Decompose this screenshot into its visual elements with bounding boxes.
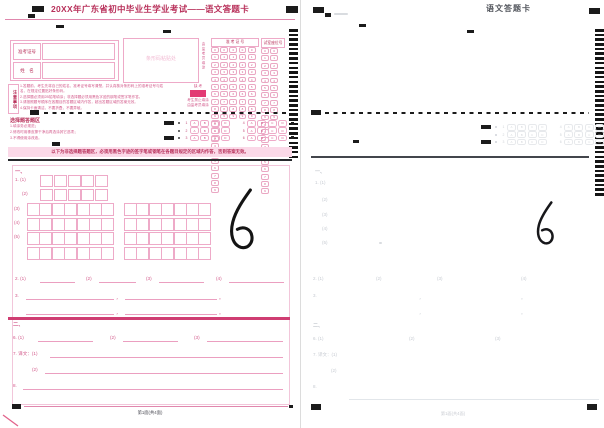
timing-mark <box>595 179 604 182</box>
timing-mark <box>289 62 298 65</box>
mc-row: 3ABCD6ABCD <box>481 139 604 146</box>
handwritten-six <box>224 188 256 255</box>
timing-mark <box>595 34 604 37</box>
option-bubble-C: C <box>585 124 594 131</box>
option-bubble-B: B <box>257 135 266 142</box>
timing-mark <box>595 38 604 41</box>
answer-box <box>136 203 149 216</box>
answer-box <box>39 247 52 260</box>
section-one-label: 一、 <box>315 168 325 175</box>
answer-box <box>77 203 90 216</box>
timing-mark <box>595 174 604 177</box>
option-bubble-D: D <box>538 131 547 138</box>
digit-bubble-4: 4 <box>248 77 256 83</box>
answer-box <box>149 203 162 216</box>
barcode-area: 条形码粘贴处 <box>123 38 199 83</box>
footer-rule <box>349 399 599 400</box>
answer-box <box>101 247 114 260</box>
candidate-info-form: 准考证号 姓 名 <box>10 40 119 81</box>
dot-mark <box>495 141 497 143</box>
name-field <box>42 62 115 79</box>
digit-bubble-4: 4 <box>270 78 278 84</box>
answer-box <box>39 232 52 245</box>
answer-blank <box>159 282 204 283</box>
answer-box <box>64 218 77 231</box>
q2-sub2-label: (2) <box>376 276 382 281</box>
digit-bubble-2: 2 <box>270 63 278 69</box>
option-bubble-B: B <box>200 127 209 134</box>
digit-bubble-7: 7 <box>261 100 269 106</box>
question-number: 1 <box>500 125 507 129</box>
option-bubble-A: A <box>564 124 573 131</box>
sync-mark <box>30 110 39 115</box>
digit-bubble-3: 3 <box>239 69 247 75</box>
answer-box <box>186 247 199 260</box>
sync-mark <box>289 405 293 408</box>
timing-mark <box>595 165 604 168</box>
option-bubble-A: A <box>190 135 199 142</box>
q7-sub1-label: 7. 译文：(1) <box>13 351 38 357</box>
question-number: 4 <box>557 125 564 129</box>
period-mark: 。 <box>219 310 224 316</box>
timing-mark <box>289 90 298 93</box>
option-bubble-D: D <box>278 120 287 127</box>
timing-mark <box>595 184 604 187</box>
q3-label: 3. <box>15 293 19 298</box>
sync-mark <box>481 140 491 144</box>
q2-sub4-label: (4) <box>216 276 222 281</box>
timing-mark <box>595 193 604 196</box>
digit-bubble-6: 6 <box>211 91 219 97</box>
q1-sub1-label: 1. (1) <box>315 180 326 185</box>
q3-label: 3. <box>313 293 317 298</box>
answer-box <box>52 218 65 231</box>
digit-bubble-2: 2 <box>211 62 219 68</box>
answer-blank <box>50 357 283 358</box>
sync-mark <box>163 30 171 33</box>
period-mark: 。 <box>521 310 526 316</box>
digit-bubble-6: 6 <box>248 91 256 97</box>
digit-bubble-6: 6 <box>270 92 278 98</box>
comma-mark: ， <box>116 295 121 301</box>
comma-mark: ， <box>116 310 121 316</box>
corner-mark <box>589 8 600 14</box>
option-bubble-C: C <box>211 135 220 142</box>
q7-sub2-label: (2) <box>32 367 38 372</box>
timing-mark <box>289 34 298 37</box>
mc-bubble-rows: 1ABCD4ABCD2ABCD5ABCD3ABCD6ABCD <box>164 118 290 145</box>
q1-sub4-label: (4) <box>14 220 20 225</box>
notice-label: 注意事项 <box>8 84 19 114</box>
digit-bubble-4: 4 <box>261 78 269 84</box>
answer-box <box>161 218 174 231</box>
digit-column: 0123456789 <box>248 47 256 121</box>
digit-bubble-5: 5 <box>270 85 278 91</box>
timing-mark <box>289 99 298 102</box>
answer-blank <box>207 341 283 342</box>
option-bubble-A: A <box>564 131 573 138</box>
answer-blank <box>26 299 114 300</box>
digit-column: 0123456789 <box>211 47 219 121</box>
option-bubble-C: C <box>585 139 594 146</box>
q1-sub4-label: (4) <box>322 226 328 231</box>
answer-blank <box>123 341 178 342</box>
digit-bubble-1: 1 <box>211 54 219 60</box>
digit-column: 0123456789 <box>270 48 278 122</box>
section-two-label: 二、 <box>13 321 23 328</box>
answer-box <box>161 232 174 245</box>
answer-box <box>27 232 40 245</box>
section-divider <box>8 317 290 320</box>
answer-box <box>54 175 67 187</box>
answer-box <box>68 175 81 187</box>
answer-box <box>64 203 77 216</box>
option-bubble-D: D <box>538 139 547 146</box>
section-rule <box>8 159 292 161</box>
question-number: 3 <box>500 140 507 144</box>
section-one-label: 一、 <box>15 168 25 175</box>
timing-mark <box>289 142 298 145</box>
mc-row: 3ABCD6ABCD <box>164 135 294 142</box>
answer-blank <box>38 341 93 342</box>
exam-number-grid: 由监考员填涂 准 考 证 号 0123456789012345678901234… <box>202 36 260 106</box>
option-bubble-D: D <box>221 120 230 127</box>
q2-sub3-label: (3) <box>437 276 443 281</box>
exam-title-short: 语文答题卡 <box>486 3 531 14</box>
digit-bubble-0: 0 <box>220 47 228 53</box>
answer-box <box>174 203 187 216</box>
answer-box <box>174 247 187 260</box>
digit-bubble-3: 3 <box>220 69 228 75</box>
q8-label: 8. <box>13 383 17 388</box>
grid-header: 试室座位号 <box>261 38 285 48</box>
option-bubble-B: B <box>574 131 583 138</box>
answer-box <box>89 247 102 260</box>
digit-bubble-2: 2 <box>261 63 269 69</box>
option-bubble-B: B <box>517 124 526 131</box>
answer-box <box>149 247 162 260</box>
digit-bubble-3: 3 <box>261 70 269 76</box>
timing-mark <box>595 29 604 32</box>
page-dropout-copy: 语文答题卡 1ABCD4ABCD2ABCD5ABCD3ABCD6ABCD 一、 … <box>300 0 604 428</box>
option-bubble-C: C <box>585 131 594 138</box>
answer-box <box>186 218 199 231</box>
comma-mark: ， <box>419 295 424 301</box>
question-number: 2 <box>183 129 190 133</box>
answer-box <box>136 232 149 245</box>
answer-blank <box>40 282 75 283</box>
spacer <box>481 133 491 137</box>
digit-bubble-0: 0 <box>239 47 247 53</box>
dot-mark <box>495 134 497 136</box>
timing-mark <box>289 48 298 51</box>
digit-bubble-5: 5 <box>248 84 256 90</box>
timing-mark <box>595 109 604 112</box>
answer-box <box>77 247 90 260</box>
answer-sheet-scan: 20XX年广东省初中毕业生学业考试——语文答题卡 准考证号 姓 名 条形码粘贴处… <box>0 0 604 428</box>
q8-label: 8. <box>313 384 317 389</box>
digit-bubble-0: 0 <box>248 47 256 53</box>
answer-box <box>161 203 174 216</box>
option-bubble-A: A <box>507 139 516 146</box>
sync-mark <box>359 24 366 27</box>
q1-sub3-label: (3) <box>322 212 328 217</box>
answer-box <box>39 218 52 231</box>
digit-bubble-6: 6 <box>220 91 228 97</box>
answer-box <box>77 218 90 231</box>
timing-mark <box>595 57 604 60</box>
answer-blank <box>23 389 283 390</box>
option-bubble-A: A <box>247 135 256 142</box>
perforation-line <box>325 112 589 114</box>
notice-block: 注意事项 1.答题前，考生先将自己的姓名、准考证号填写清楚，并认真核对条形码上的… <box>8 84 165 112</box>
answer-box <box>174 232 187 245</box>
answer-box <box>27 218 40 231</box>
answer-box <box>64 232 77 245</box>
digit-bubble-4: 4 <box>239 77 247 83</box>
speck <box>379 242 382 244</box>
timing-mark <box>595 76 604 79</box>
timing-mark <box>289 95 298 98</box>
option-bubble-D: D <box>221 127 230 134</box>
dot-mark <box>495 126 497 128</box>
option-bubble-A: A <box>507 124 516 131</box>
digit-bubble-2: 2 <box>220 62 228 68</box>
q1-sub5-label: (5) <box>14 234 20 239</box>
digit-bubble-7: 7 <box>248 99 256 105</box>
exam-title: 20XX年广东省初中毕业生学业考试——语文答题卡 <box>0 3 300 15</box>
sync-mark <box>164 136 174 140</box>
notice-lines: 1.答题前，考生先将自己的姓名、准考证号填写清楚，并认真核对条形码上的准考证号与… <box>20 84 165 111</box>
option-bubble-C: C <box>268 127 277 134</box>
option-bubble-D: D <box>278 127 287 134</box>
answer-box <box>198 203 211 216</box>
timing-mark <box>595 62 604 65</box>
answer-box <box>124 203 137 216</box>
option-bubble-D: D <box>221 135 230 142</box>
seat-number-grid: 试室座位号 012345678901234567890123456789 <box>261 38 286 106</box>
mc-row: 1ABCD4ABCD <box>481 124 604 131</box>
timing-mark <box>595 52 604 55</box>
corner-slash <box>2 414 20 427</box>
mc-instructions: 1.填涂务必规范； 2.修改时用橡皮擦干净后再选涂其它选项； 3.不得使用涂改液… <box>10 124 155 141</box>
timing-mark <box>595 85 604 88</box>
option-bubble-B: B <box>517 131 526 138</box>
answer-box <box>136 218 149 231</box>
digit-bubble-6: 6 <box>229 91 237 97</box>
answer-blank <box>125 299 217 300</box>
digit-bubble-7: 7 <box>229 99 237 105</box>
sync-mark <box>311 404 321 410</box>
sync-mark <box>467 30 474 33</box>
digit-bubble-5: 5 <box>211 84 219 90</box>
option-bubble-A: A <box>190 127 199 134</box>
timing-mark <box>289 29 298 32</box>
digit-bubble-0: 0 <box>229 47 237 53</box>
answer-blank <box>229 282 284 283</box>
timing-mark <box>289 52 298 55</box>
timing-mark <box>595 81 604 84</box>
answer-box <box>136 247 149 260</box>
option-bubble-B: B <box>574 139 583 146</box>
timing-mark <box>595 90 604 93</box>
period-mark: 。 <box>521 295 526 301</box>
answer-box <box>198 232 211 245</box>
section-rule <box>311 156 589 158</box>
comma-mark: ， <box>419 310 424 316</box>
dot-mark <box>178 137 180 139</box>
digit-bubble-3: 3 <box>229 69 237 75</box>
q1-sub5-label: (5) <box>322 240 328 245</box>
answer-box <box>198 247 211 260</box>
answer-box <box>52 232 65 245</box>
option-bubble-B: B <box>257 127 266 134</box>
timing-mark <box>289 38 298 41</box>
digit-bubble-5: 5 <box>239 84 247 90</box>
answer-box <box>149 218 162 231</box>
digit-bubble-5: 5 <box>261 85 269 91</box>
digit-bubble-4: 4 <box>211 77 219 83</box>
answer-box <box>52 247 65 260</box>
digit-bubble-2: 2 <box>229 62 237 68</box>
digit-column: 0123456789 <box>229 47 237 121</box>
answer-box <box>174 218 187 231</box>
digit-bubble-1: 1 <box>270 55 278 61</box>
grid-side-label: 由监考员填涂 <box>202 42 207 102</box>
timing-mark <box>595 188 604 191</box>
answer-blank <box>26 314 114 315</box>
answer-box <box>89 203 102 216</box>
digit-bubble-1: 1 <box>229 54 237 60</box>
timing-mark <box>595 156 604 159</box>
sync-mark <box>353 140 359 143</box>
answer-box <box>40 189 53 201</box>
answer-box <box>161 247 174 260</box>
question-number: 3 <box>183 136 190 140</box>
answer-box <box>54 189 67 201</box>
answer-box <box>95 175 108 187</box>
option-bubble-C: C <box>528 131 537 138</box>
option-bubble-B: B <box>517 139 526 146</box>
option-bubble-D: D <box>595 139 604 146</box>
answer-box <box>124 218 137 231</box>
option-bubble-C: C <box>211 127 220 134</box>
answer-box <box>198 218 211 231</box>
answer-box <box>64 247 77 260</box>
digit-bubble-0: 0 <box>270 48 278 54</box>
timing-mark <box>595 99 604 102</box>
spacer <box>164 129 174 133</box>
answer-box <box>95 189 108 201</box>
digit-bubble-7: 7 <box>220 99 228 105</box>
answer-box <box>186 203 199 216</box>
timing-mark <box>289 104 298 107</box>
timing-mark <box>595 113 604 116</box>
timing-mark <box>289 76 298 79</box>
question-number: 5 <box>557 133 564 137</box>
answer-box <box>81 175 94 187</box>
digit-bubble-3: 3 <box>211 69 219 75</box>
mc-row: 1ABCD4ABCD <box>164 120 294 127</box>
digit-bubble-1: 1 <box>220 54 228 60</box>
option-bubble-A: A <box>247 120 256 127</box>
option-bubble-D: D <box>538 124 547 131</box>
answer-box <box>27 203 40 216</box>
question-number: 5 <box>240 129 247 133</box>
q1-sub3-label: (3) <box>14 206 20 211</box>
digit-bubble-7: 7 <box>211 99 219 105</box>
answer-box <box>149 232 162 245</box>
header-rule <box>5 19 295 20</box>
answer-blank <box>99 282 136 283</box>
corner-mark <box>313 7 324 13</box>
digit-bubble-1: 1 <box>261 55 269 61</box>
answer-blank <box>125 314 217 315</box>
q1-sub1-label: 1. (1) <box>15 177 26 182</box>
option-bubble-B: B <box>200 120 209 127</box>
option-bubble-A: A <box>507 131 516 138</box>
mc-row: 2ABCD5ABCD <box>164 127 288 134</box>
digit-bubble-6: 6 <box>239 91 247 97</box>
sync-mark <box>481 125 491 129</box>
digit-bubble-5: 5 <box>229 84 237 90</box>
sync-mark <box>164 121 174 125</box>
digit-bubble-7: 7 <box>239 99 247 105</box>
mc-bubble-rows-faint: 1ABCD4ABCD2ABCD5ABCD3ABCD6ABCD <box>481 122 601 147</box>
fill-example-mark <box>52 142 60 146</box>
q1-sub2-label: (2) <box>322 197 328 202</box>
digit-bubble-4: 4 <box>229 77 237 83</box>
answer-box <box>89 218 102 231</box>
corner-mark <box>325 13 331 17</box>
timing-mark <box>595 95 604 98</box>
mc-row: 2ABCD5ABCD <box>481 131 604 138</box>
q6-sub2-label: (2) <box>110 335 116 340</box>
sync-mark <box>587 404 597 410</box>
dot-mark <box>178 130 180 132</box>
digit-bubble-5: 5 <box>220 84 228 90</box>
perforation-line <box>44 112 286 114</box>
answer-box <box>186 232 199 245</box>
answer-box <box>39 203 52 216</box>
digit-column: 0123456789 <box>220 47 228 121</box>
timing-mark <box>595 118 604 121</box>
q7-sub1-label: 7. 译文：(1) <box>313 352 337 358</box>
mc-section-heading: 选择题答题区 <box>10 117 40 124</box>
timing-mark <box>595 48 604 51</box>
page-footer: 第1面(共4面) <box>301 411 604 417</box>
answer-box <box>101 218 114 231</box>
answer-box <box>27 247 40 260</box>
q2-sub1-label: 2. (1) <box>15 276 26 281</box>
timing-mark <box>289 43 298 46</box>
grid-header: 准 考 证 号 <box>211 38 259 47</box>
digit-bubble-3: 3 <box>270 70 278 76</box>
digit-bubble-0: 0 <box>261 48 269 54</box>
q6-sub1-label: 6. (1) <box>13 335 24 340</box>
barcode-label: 条形码粘贴处 <box>124 39 198 80</box>
sync-mark <box>311 110 321 115</box>
q2-sub1-label: 2. (1) <box>313 276 324 281</box>
digit-bubble-1: 1 <box>248 54 256 60</box>
timing-column <box>595 29 604 198</box>
digit-bubble-3: 3 <box>248 69 256 75</box>
timing-mark <box>289 85 298 88</box>
answer-box <box>77 232 90 245</box>
timing-mark <box>289 57 298 60</box>
digit-bubble-0: 0 <box>211 47 219 53</box>
option-bubble-B: B <box>574 124 583 131</box>
